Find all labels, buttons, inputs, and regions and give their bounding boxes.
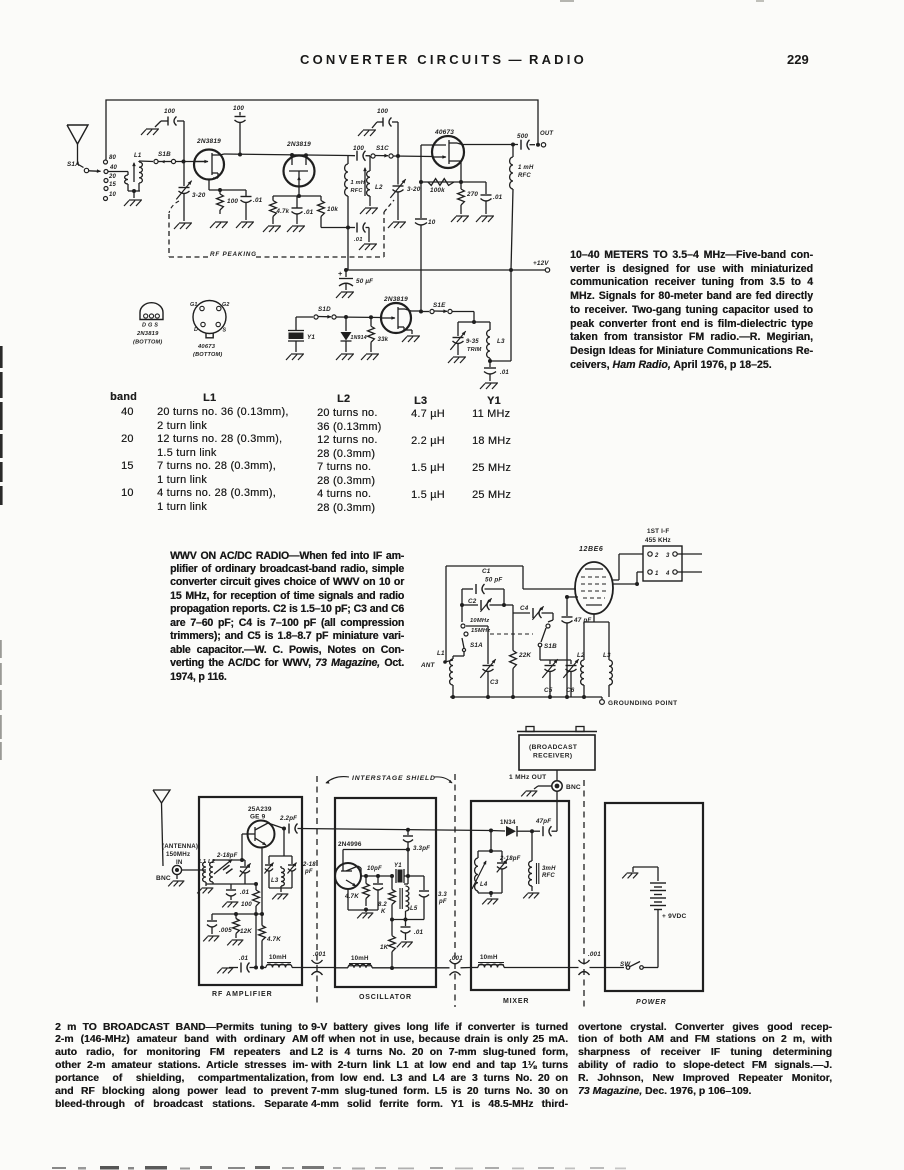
svg-text:2N3819: 2N3819	[196, 138, 221, 145]
svg-text:1N34: 1N34	[500, 819, 516, 826]
svg-text:.001: .001	[588, 951, 601, 958]
svg-text:8.2: 8.2	[378, 902, 387, 908]
svg-text:80: 80	[109, 155, 117, 161]
svg-text:100: 100	[233, 105, 244, 112]
svg-text:12K: 12K	[240, 928, 252, 935]
svg-text:D: D	[194, 327, 198, 333]
svg-text:C1: C1	[482, 568, 491, 575]
svg-text:10: 10	[428, 219, 436, 226]
svg-text:OSCILLATOR: OSCILLATOR	[359, 994, 412, 1001]
svg-text:L3: L3	[497, 338, 505, 345]
svg-text:10MHz: 10MHz	[470, 618, 489, 624]
svg-text:TRIM: TRIM	[467, 347, 482, 353]
svg-text:455 KHz: 455 KHz	[645, 537, 671, 544]
svg-text:40: 40	[109, 165, 118, 171]
svg-text:ANT: ANT	[420, 662, 435, 669]
svg-text:10mH: 10mH	[351, 955, 369, 962]
svg-text:100: 100	[353, 145, 364, 152]
svg-text:2-18: 2-18	[302, 862, 316, 868]
svg-text:.01: .01	[414, 929, 424, 936]
svg-text:S1A: S1A	[67, 161, 80, 168]
svg-text:270: 270	[466, 191, 478, 198]
svg-text:C4: C4	[520, 605, 529, 612]
svg-text:L1: L1	[437, 650, 445, 657]
svg-text:Y1: Y1	[394, 863, 402, 869]
svg-text:pF: pF	[438, 899, 447, 905]
svg-text:RFC: RFC	[351, 188, 364, 194]
svg-text:3.3: 3.3	[438, 892, 447, 898]
svg-text:S: S	[223, 328, 227, 334]
svg-text:1: 1	[655, 571, 659, 577]
svg-text:4.7K: 4.7K	[266, 936, 281, 943]
svg-text:.01: .01	[239, 955, 249, 962]
svg-text:D G S: D G S	[142, 323, 158, 329]
svg-text:1ST I-F: 1ST I-F	[647, 528, 669, 535]
svg-text:+12V: +12V	[533, 260, 549, 267]
svg-text:9-35: 9-35	[466, 339, 479, 345]
svg-text:K: K	[381, 909, 386, 915]
svg-text:22K: 22K	[518, 652, 531, 659]
svg-text:100: 100	[241, 901, 252, 908]
svg-text:RFC: RFC	[518, 173, 531, 179]
svg-text:10mH: 10mH	[480, 954, 498, 961]
svg-text:RF AMPLIFIER: RF AMPLIFIER	[212, 991, 273, 998]
svg-text:S1C: S1C	[376, 145, 389, 152]
svg-text:100k: 100k	[430, 187, 445, 194]
svg-text:.01: .01	[500, 370, 509, 376]
svg-text:3: 3	[666, 553, 670, 559]
svg-text:G2: G2	[222, 302, 230, 308]
svg-text:2N3819: 2N3819	[136, 331, 159, 337]
svg-text:2-18pF: 2-18pF	[499, 856, 521, 862]
svg-text:L3: L3	[271, 878, 279, 884]
svg-text:500: 500	[517, 133, 528, 140]
svg-text:1N914: 1N914	[351, 335, 367, 341]
svg-text:.005: .005	[219, 927, 232, 934]
svg-text:1 MHz OUT: 1 MHz OUT	[509, 774, 547, 781]
svg-text:MIXER: MIXER	[503, 998, 529, 1005]
svg-text:47pF: 47pF	[535, 818, 551, 825]
svg-text:.01: .01	[304, 209, 314, 216]
svg-text:4.7k: 4.7k	[276, 208, 290, 215]
svg-text:S1A: S1A	[470, 642, 483, 649]
svg-text:C2: C2	[468, 598, 477, 605]
svg-text:(BOTTOM): (BOTTOM)	[193, 352, 222, 358]
svg-text:C5: C5	[544, 687, 553, 694]
svg-text:L4: L4	[480, 882, 488, 888]
svg-text:GE 9: GE 9	[250, 814, 266, 821]
svg-text:OUT: OUT	[540, 131, 554, 137]
svg-text:10k: 10k	[327, 206, 338, 213]
svg-text:G1: G1	[190, 302, 198, 308]
svg-text:Y1: Y1	[307, 334, 315, 341]
svg-text:100: 100	[164, 108, 175, 115]
svg-text:S1B: S1B	[158, 151, 171, 158]
svg-text:2.2pF: 2.2pF	[279, 815, 297, 822]
svg-text:100: 100	[227, 198, 238, 205]
svg-text:L2: L2	[375, 184, 383, 191]
svg-text:1K: 1K	[380, 944, 389, 951]
svg-text:.01: .01	[493, 194, 503, 201]
svg-text:.01: .01	[253, 197, 263, 204]
svg-text:3mH: 3mH	[542, 866, 556, 872]
svg-text:10pF: 10pF	[367, 866, 382, 872]
svg-text:3-20: 3-20	[407, 186, 421, 193]
svg-text:1 mH: 1 mH	[351, 180, 366, 186]
svg-text:C3: C3	[490, 679, 499, 686]
svg-text:100: 100	[377, 108, 388, 115]
svg-text:BNC: BNC	[156, 875, 171, 882]
svg-text:10: 10	[109, 192, 117, 198]
svg-text:S1B: S1B	[544, 643, 557, 650]
svg-text:.001: .001	[450, 955, 463, 962]
svg-text:L1: L1	[134, 153, 142, 159]
svg-text:50 pF: 50 pF	[485, 577, 502, 584]
svg-text:INTERSTAGE SHIELD: INTERSTAGE SHIELD	[352, 775, 436, 782]
svg-text:.01: .01	[354, 237, 363, 243]
svg-text:pF: pF	[304, 869, 313, 875]
svg-text:(ANTENNA): (ANTENNA)	[162, 843, 198, 850]
svg-text:(BOTTOM): (BOTTOM)	[133, 340, 162, 346]
svg-text:20: 20	[108, 174, 117, 180]
svg-text:33k: 33k	[378, 336, 389, 343]
svg-text:L3: L3	[603, 652, 611, 659]
svg-text:150MHz: 150MHz	[166, 851, 190, 858]
svg-text:2N4996: 2N4996	[338, 841, 362, 848]
svg-text:S1D: S1D	[318, 306, 331, 313]
svg-text:2N3819: 2N3819	[286, 141, 311, 148]
svg-text:4.7K: 4.7K	[344, 893, 359, 900]
svg-text:BNC: BNC	[566, 784, 581, 791]
svg-text:RECEIVER): RECEIVER)	[533, 753, 573, 760]
svg-text:(BROADCAST: (BROADCAST	[529, 744, 577, 751]
svg-text:1 mH: 1 mH	[518, 165, 534, 171]
svg-text:12BE6: 12BE6	[579, 546, 603, 553]
svg-text:+ 9VDC: + 9VDC	[662, 913, 687, 920]
svg-text:RFC: RFC	[542, 873, 555, 879]
svg-text:2-18pF: 2-18pF	[216, 853, 238, 859]
svg-text:25A239: 25A239	[248, 806, 272, 813]
svg-text:40673: 40673	[434, 129, 454, 136]
svg-text:2: 2	[654, 553, 659, 559]
svg-text:3.3pF: 3.3pF	[413, 845, 430, 852]
svg-text:+: +	[338, 269, 343, 278]
svg-text:.01: .01	[240, 889, 250, 896]
svg-text:C6: C6	[566, 687, 575, 694]
svg-text:GROUNDING POINT: GROUNDING POINT	[608, 700, 678, 707]
svg-text:47 pF: 47 pF	[573, 617, 591, 624]
svg-text:10mH: 10mH	[269, 954, 287, 961]
svg-text:RF PEAKING: RF PEAKING	[210, 251, 257, 258]
svg-text:15: 15	[109, 182, 117, 188]
svg-text:50 µF: 50 µF	[356, 278, 373, 285]
svg-text:4: 4	[665, 571, 670, 577]
svg-text:L5: L5	[410, 906, 418, 912]
svg-text:3-20: 3-20	[192, 192, 206, 199]
svg-text:.001: .001	[313, 951, 326, 958]
svg-text:40673: 40673	[197, 344, 216, 350]
svg-text:S1E: S1E	[433, 302, 446, 309]
svg-text:POWER: POWER	[636, 999, 666, 1006]
